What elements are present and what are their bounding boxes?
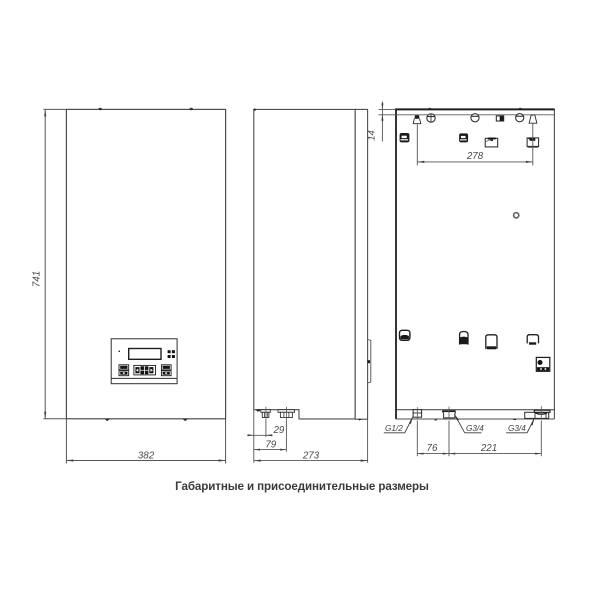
- svg-text:Габаритные и присоединительные: Габаритные и присоединительные размеры: [175, 480, 429, 493]
- svg-text:76: 76: [427, 443, 438, 454]
- svg-text:29: 29: [272, 425, 284, 436]
- svg-text:79: 79: [265, 439, 276, 450]
- svg-text:14: 14: [367, 130, 378, 141]
- svg-text:741: 741: [32, 271, 43, 287]
- svg-text:278: 278: [466, 151, 484, 162]
- svg-text:G3/4: G3/4: [508, 424, 526, 433]
- svg-text:221: 221: [480, 443, 497, 454]
- svg-text:382: 382: [138, 450, 155, 461]
- svg-text:273: 273: [302, 450, 320, 461]
- svg-text:G1/2: G1/2: [385, 424, 403, 433]
- svg-text:G3/4: G3/4: [466, 424, 484, 433]
